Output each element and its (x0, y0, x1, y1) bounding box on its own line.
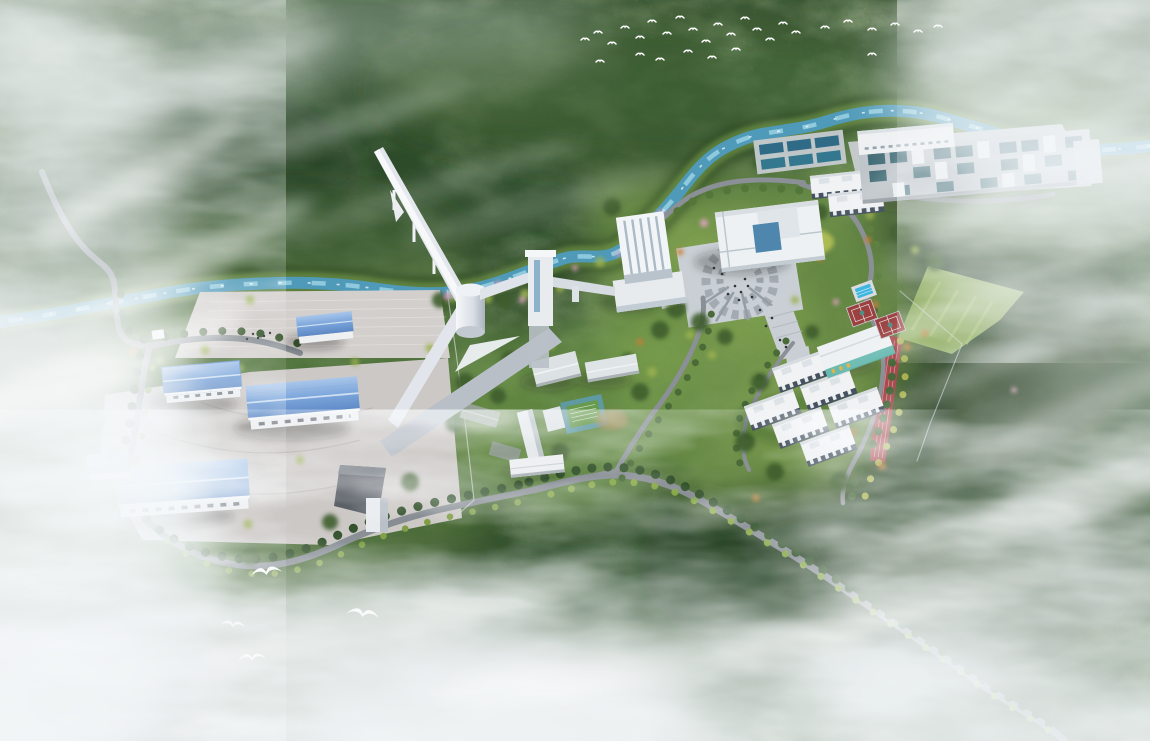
hq-glass-atrium (753, 222, 782, 253)
river-bridge-tower (528, 254, 553, 326)
headquarters-building (715, 200, 826, 272)
dirt-patch (596, 410, 628, 430)
aerial-render (0, 0, 1150, 741)
